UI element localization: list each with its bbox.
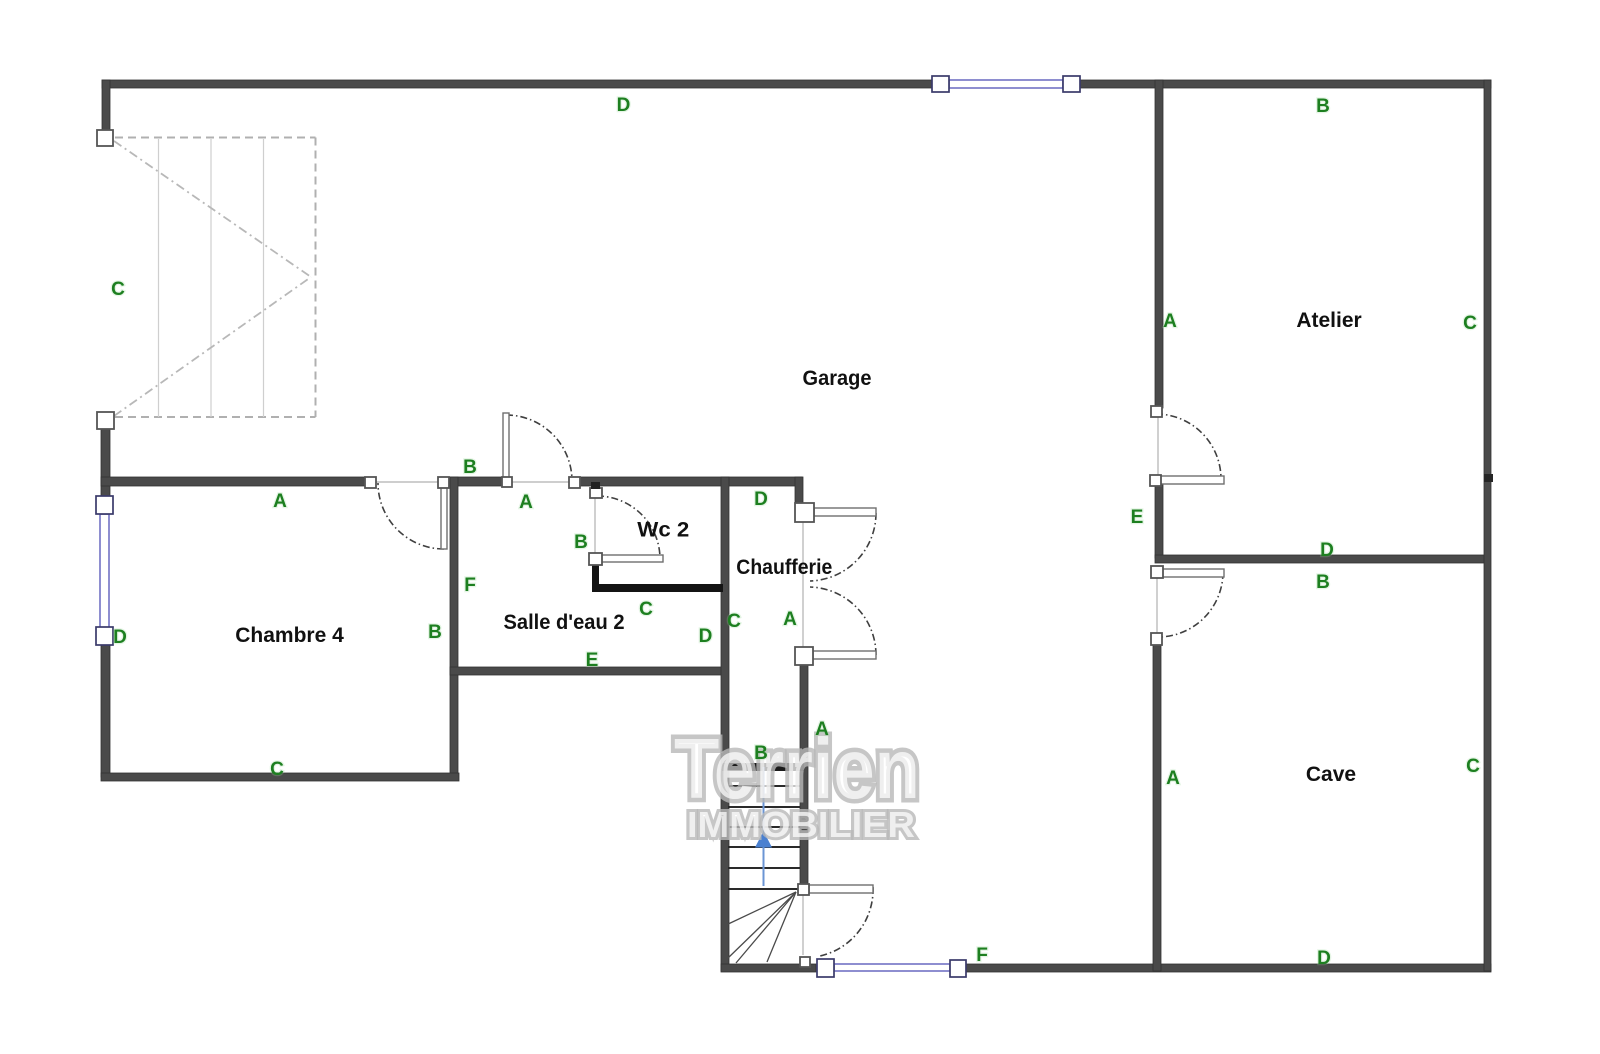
svg-text:D: D — [699, 626, 713, 647]
svg-text:A: A — [783, 609, 797, 630]
svg-text:E: E — [1131, 507, 1144, 528]
svg-text:C: C — [639, 599, 653, 620]
svg-text:A: A — [815, 719, 829, 740]
svg-text:Wc 2: Wc 2 — [637, 519, 689, 542]
svg-text:B: B — [754, 743, 768, 764]
svg-text:D: D — [754, 489, 768, 510]
svg-text:Atelier: Atelier — [1296, 309, 1361, 332]
svg-text:D: D — [1320, 540, 1334, 561]
svg-text:Cave: Cave — [1306, 763, 1356, 786]
svg-text:A: A — [273, 491, 287, 512]
svg-text:B: B — [1316, 572, 1330, 593]
svg-text:B: B — [574, 532, 588, 553]
svg-text:A: A — [1166, 768, 1180, 789]
svg-text:Terrien: Terrien — [674, 722, 920, 817]
svg-text:C: C — [270, 759, 284, 780]
svg-text:B: B — [1316, 96, 1330, 117]
svg-text:C: C — [111, 279, 125, 300]
svg-text:F: F — [464, 575, 476, 596]
svg-text:IMMOBILIER: IMMOBILIER — [687, 804, 915, 845]
svg-text:Chaufferie: Chaufferie — [736, 556, 832, 579]
svg-text:E: E — [586, 650, 599, 671]
svg-text:Garage: Garage — [803, 367, 872, 390]
svg-text:B: B — [463, 457, 477, 478]
svg-text:B: B — [428, 622, 442, 643]
svg-text:Salle d'eau 2: Salle d'eau 2 — [504, 611, 625, 634]
svg-text:C: C — [1466, 756, 1480, 777]
svg-text:A: A — [519, 492, 533, 513]
svg-text:A: A — [1163, 311, 1177, 332]
svg-text:F: F — [976, 945, 988, 966]
svg-text:D: D — [1317, 948, 1331, 969]
svg-text:C: C — [1463, 313, 1477, 334]
svg-text:D: D — [113, 627, 127, 648]
svg-text:C: C — [727, 611, 741, 632]
svg-text:D: D — [617, 95, 631, 116]
svg-text:Chambre 4: Chambre 4 — [235, 624, 344, 647]
